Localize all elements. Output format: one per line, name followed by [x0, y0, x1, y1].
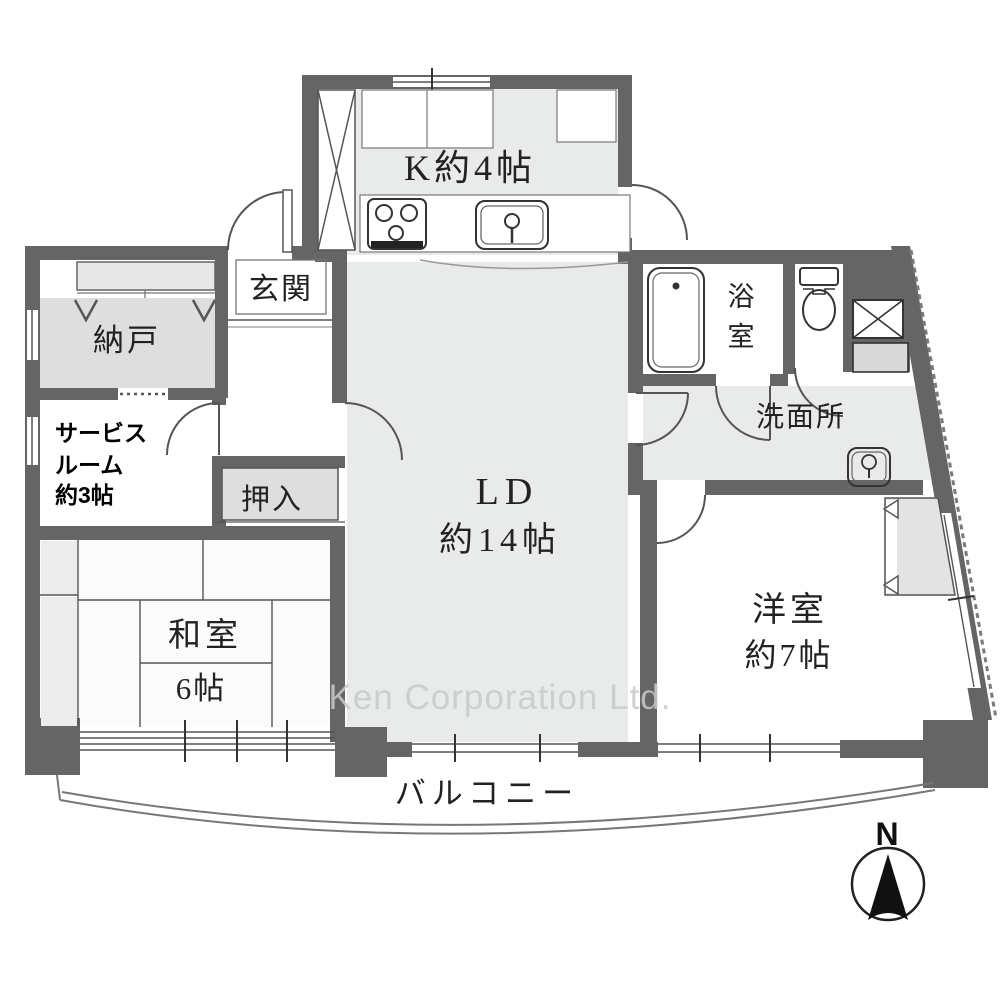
entrance-label: 玄関 — [249, 273, 313, 306]
watermark-text: Ken Corporation Ltd. — [329, 678, 672, 717]
oshiire-label: 押入 — [241, 483, 303, 516]
washroom-label: 洗面所 — [756, 401, 846, 433]
floor-plan: K約4帖 玄関 納戸 サービス ルーム 約3帖 押入 LD 約14帖 和室 6帖… — [0, 0, 1000, 1000]
sink-icon — [476, 201, 548, 249]
service-room-label-2: ルーム — [55, 452, 123, 478]
stove-icon — [368, 199, 426, 249]
bath-floor — [643, 264, 783, 374]
floor-plan-page: K約4帖 玄関 納戸 サービス ルーム 約3帖 押入 LD 約14帖 和室 6帖… — [0, 0, 1000, 1000]
balcony-label: バルコニー — [395, 776, 579, 811]
bathroom-label-1: 浴 — [728, 282, 755, 312]
living-dining-size-label: 約14帖 — [439, 521, 561, 559]
western-room-size-label: 約7帖 — [744, 637, 833, 673]
living-dining-label: LD — [476, 471, 539, 513]
washroom-floor — [643, 386, 931, 480]
japanese-room-label: 和室 — [168, 617, 242, 654]
storage-label: 納戸 — [93, 323, 161, 358]
western-room-label: 洋室 — [752, 591, 828, 629]
compass-north-label: N — [875, 816, 898, 852]
compass-icon — [852, 848, 924, 920]
kitchen-cabinet-right — [557, 90, 616, 142]
service-room-label-1: サービス — [55, 420, 147, 446]
bathroom-label-2: 室 — [728, 322, 755, 352]
storage-shelf — [77, 262, 215, 290]
kitchen-label: K約4帖 — [404, 148, 536, 188]
toilet-icon — [800, 268, 838, 330]
vent-shaft-icon — [853, 300, 903, 338]
japanese-room-size-label: 6帖 — [176, 671, 227, 706]
service-room-label-3: 約3帖 — [55, 482, 114, 508]
washer-space — [853, 343, 908, 372]
